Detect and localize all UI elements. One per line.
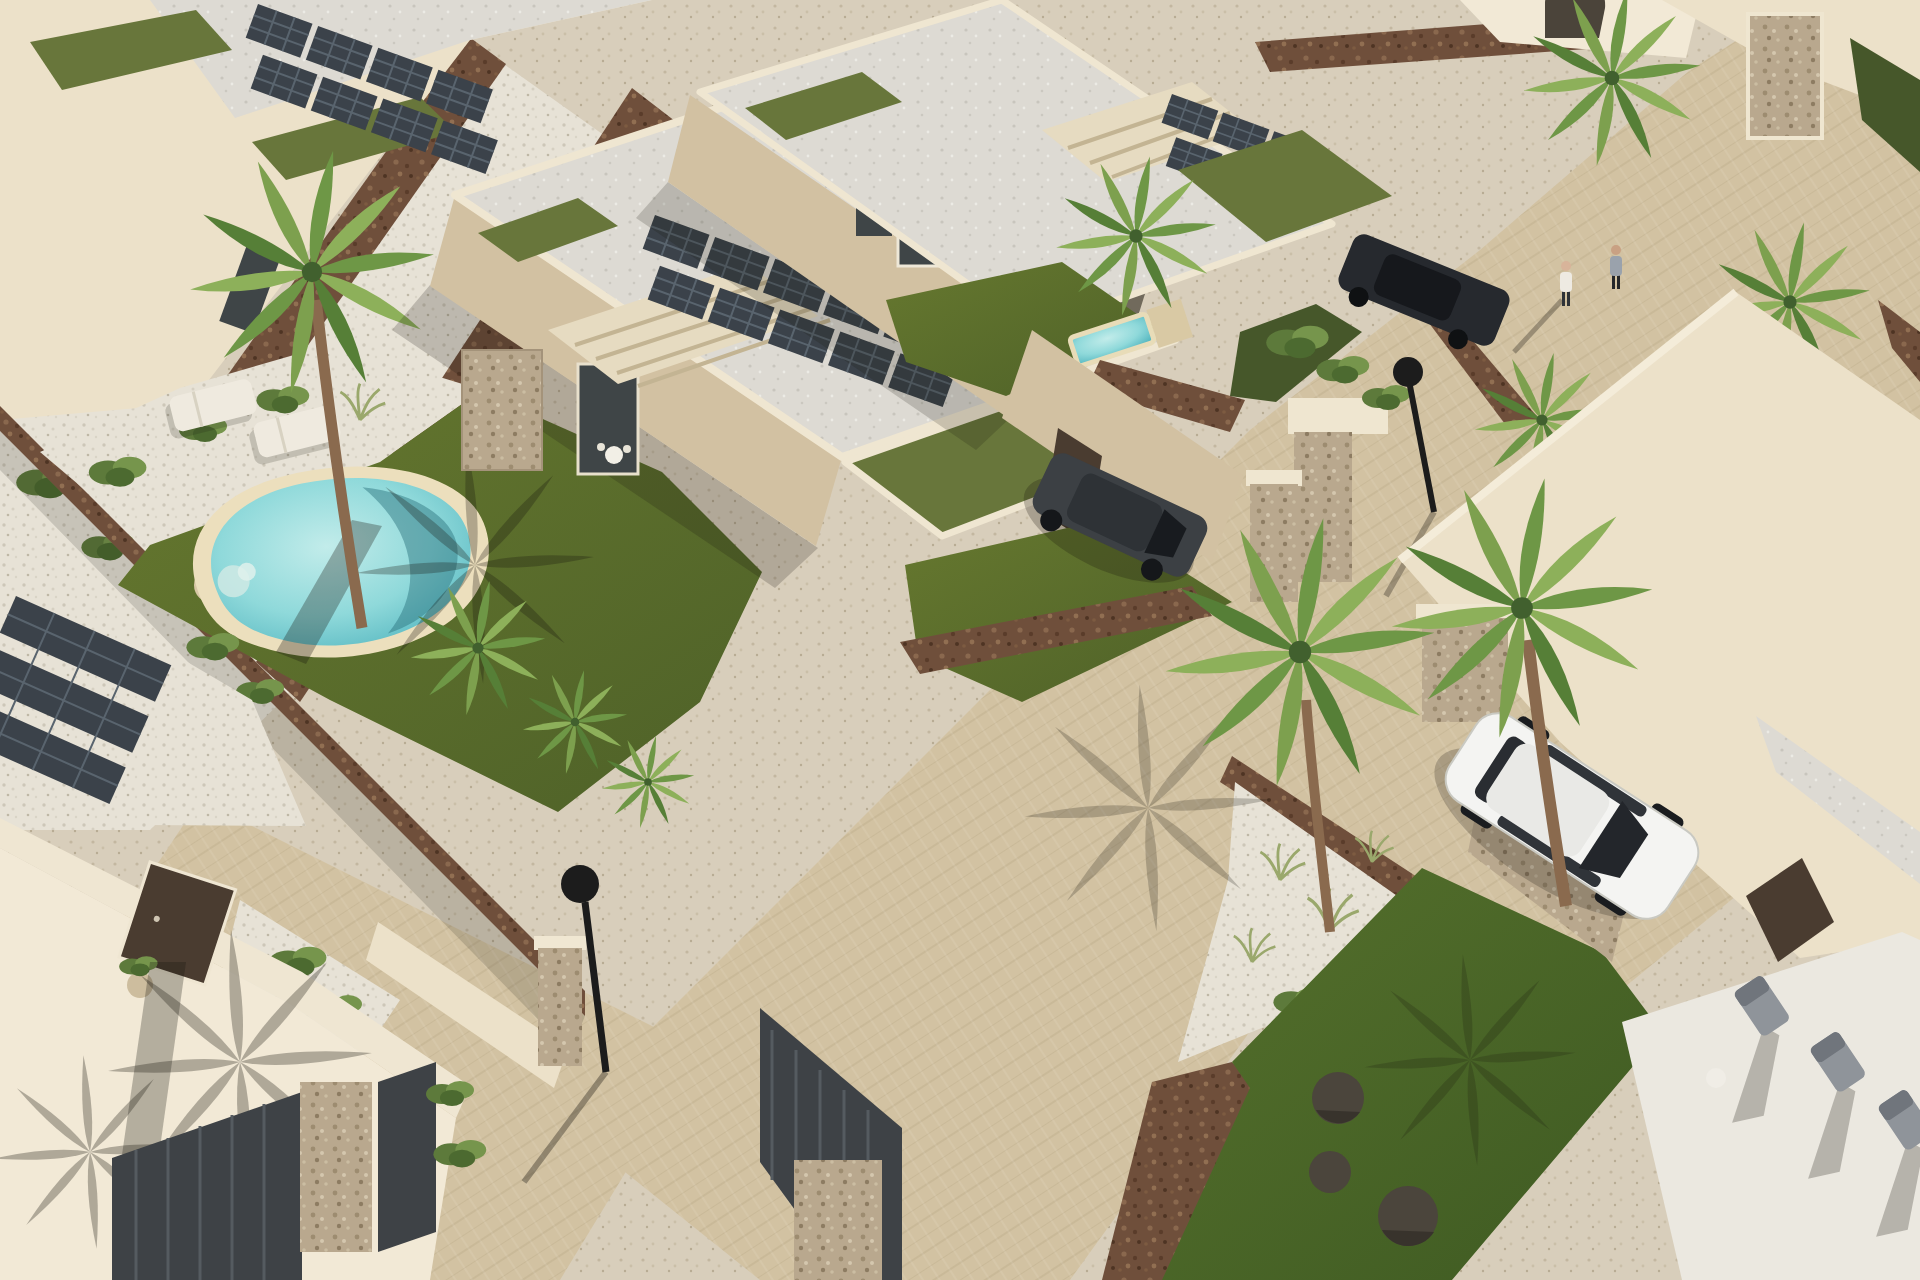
pillar-cap (1246, 470, 1302, 486)
stone-pillar-garden-gate (538, 948, 582, 1066)
scene-canvas (0, 0, 1920, 1280)
pedestrian-legs (1562, 290, 1565, 306)
stone-pillar-centre (794, 1160, 882, 1280)
stone-pillar-gateway-1 (1294, 432, 1352, 582)
patio-table (605, 446, 623, 464)
pedestrian-torso (1560, 272, 1572, 292)
pedestrian-legs (1617, 274, 1620, 289)
stone-pillar-corner (1748, 14, 1822, 138)
lawn-pouf-2 (1309, 1151, 1351, 1193)
street-lamp-head (561, 865, 599, 903)
villa-b-stone-cladding (462, 350, 542, 470)
pedestrian-legs (1612, 274, 1615, 289)
pedestrian-torso (1610, 256, 1622, 276)
pillar-cap (534, 936, 586, 950)
patio-chair (623, 445, 631, 453)
pedestrian-legs (1567, 290, 1570, 306)
terrace-side-table (1706, 1068, 1726, 1088)
patio-chair (597, 443, 605, 451)
pedestrian-head (1611, 245, 1621, 255)
render-viewport: Bird's-eye 3D rendering of a new-build M… (0, 0, 1920, 1280)
stone-pillar-bottom-left (300, 1082, 372, 1252)
street-lamp-head (1393, 357, 1423, 387)
pedestrian-head (1561, 261, 1571, 271)
